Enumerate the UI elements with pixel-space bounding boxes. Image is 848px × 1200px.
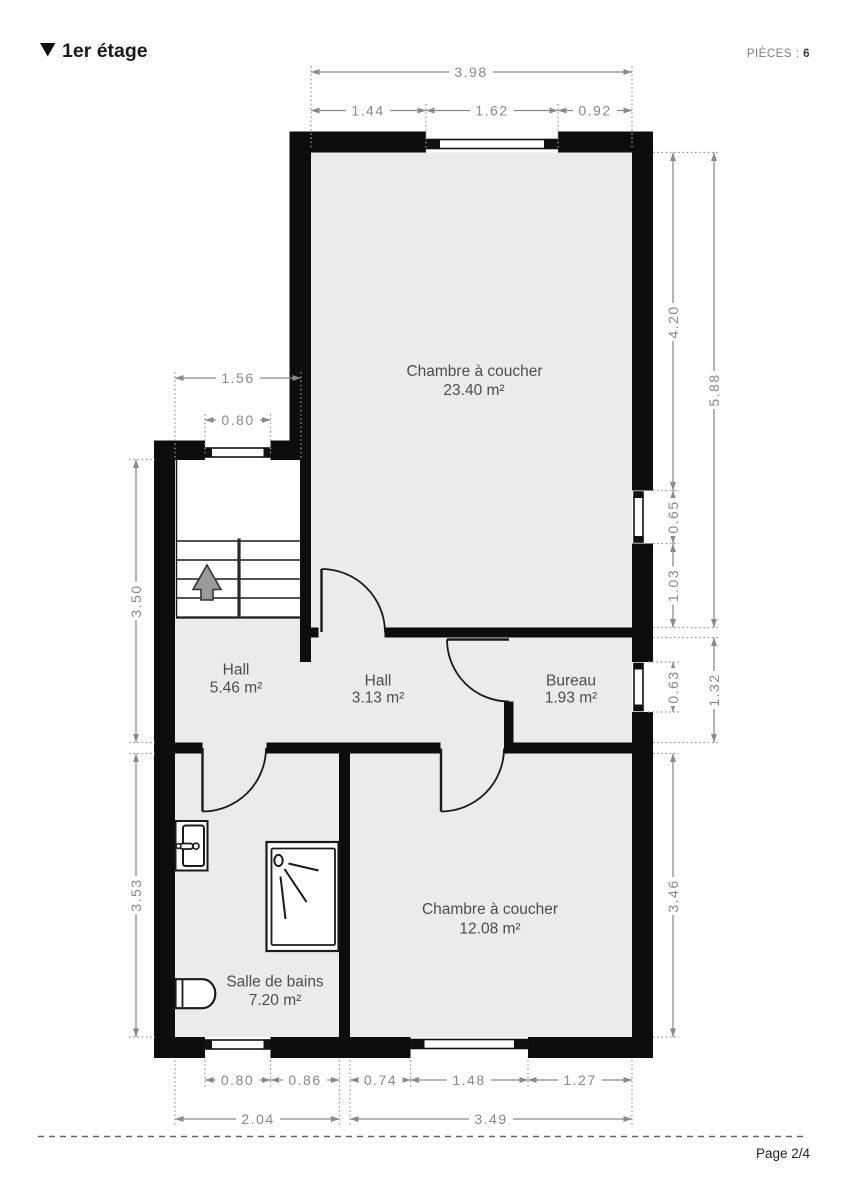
svg-text:3.49: 3.49 [474, 1111, 507, 1127]
svg-text:0.74: 0.74 [364, 1072, 397, 1088]
svg-text:3.53: 3.53 [128, 878, 144, 911]
svg-text:1.62: 1.62 [475, 103, 508, 119]
svg-text:2.04: 2.04 [241, 1111, 274, 1127]
svg-text:0.63: 0.63 [665, 670, 681, 703]
svg-text:0.80: 0.80 [221, 1072, 254, 1088]
svg-text:1.48: 1.48 [452, 1072, 485, 1088]
svg-text:0.65: 0.65 [665, 500, 681, 533]
svg-text:Page 2/4: Page 2/4 [756, 1146, 811, 1161]
svg-text:3.13 m²: 3.13 m² [352, 690, 405, 707]
svg-text:5.88: 5.88 [706, 373, 722, 406]
svg-text:3.98: 3.98 [454, 64, 487, 80]
svg-text:0.86: 0.86 [288, 1072, 321, 1088]
svg-text:5.46 m²: 5.46 m² [210, 680, 263, 697]
svg-text:1.44: 1.44 [351, 103, 384, 119]
svg-text:1.93 m²: 1.93 m² [545, 690, 598, 707]
svg-text:Hall: Hall [223, 661, 250, 678]
svg-text:1.03: 1.03 [665, 569, 681, 602]
svg-text:Chambre à coucher: Chambre à coucher [406, 363, 542, 380]
svg-text:4.20: 4.20 [665, 305, 681, 338]
svg-text:12.08 m²: 12.08 m² [459, 921, 520, 938]
svg-text:Salle de bains: Salle de bains [226, 973, 324, 990]
svg-text:7.20 m²: 7.20 m² [249, 992, 302, 1009]
svg-text:PIÈCES : 6: PIÈCES : 6 [747, 47, 810, 60]
svg-text:0.92: 0.92 [578, 103, 611, 119]
svg-text:3.50: 3.50 [128, 584, 144, 617]
svg-text:1er étage: 1er étage [62, 40, 148, 62]
svg-text:1.27: 1.27 [563, 1072, 596, 1088]
svg-text:23.40 m²: 23.40 m² [443, 382, 504, 399]
svg-text:Chambre à coucher: Chambre à coucher [422, 901, 558, 918]
svg-text:0.80: 0.80 [221, 412, 254, 428]
svg-text:1.56: 1.56 [221, 370, 254, 386]
svg-text:1.32: 1.32 [706, 673, 722, 706]
svg-text:Hall: Hall [365, 673, 392, 690]
svg-text:Bureau: Bureau [546, 673, 596, 690]
svg-text:3.46: 3.46 [665, 879, 681, 912]
